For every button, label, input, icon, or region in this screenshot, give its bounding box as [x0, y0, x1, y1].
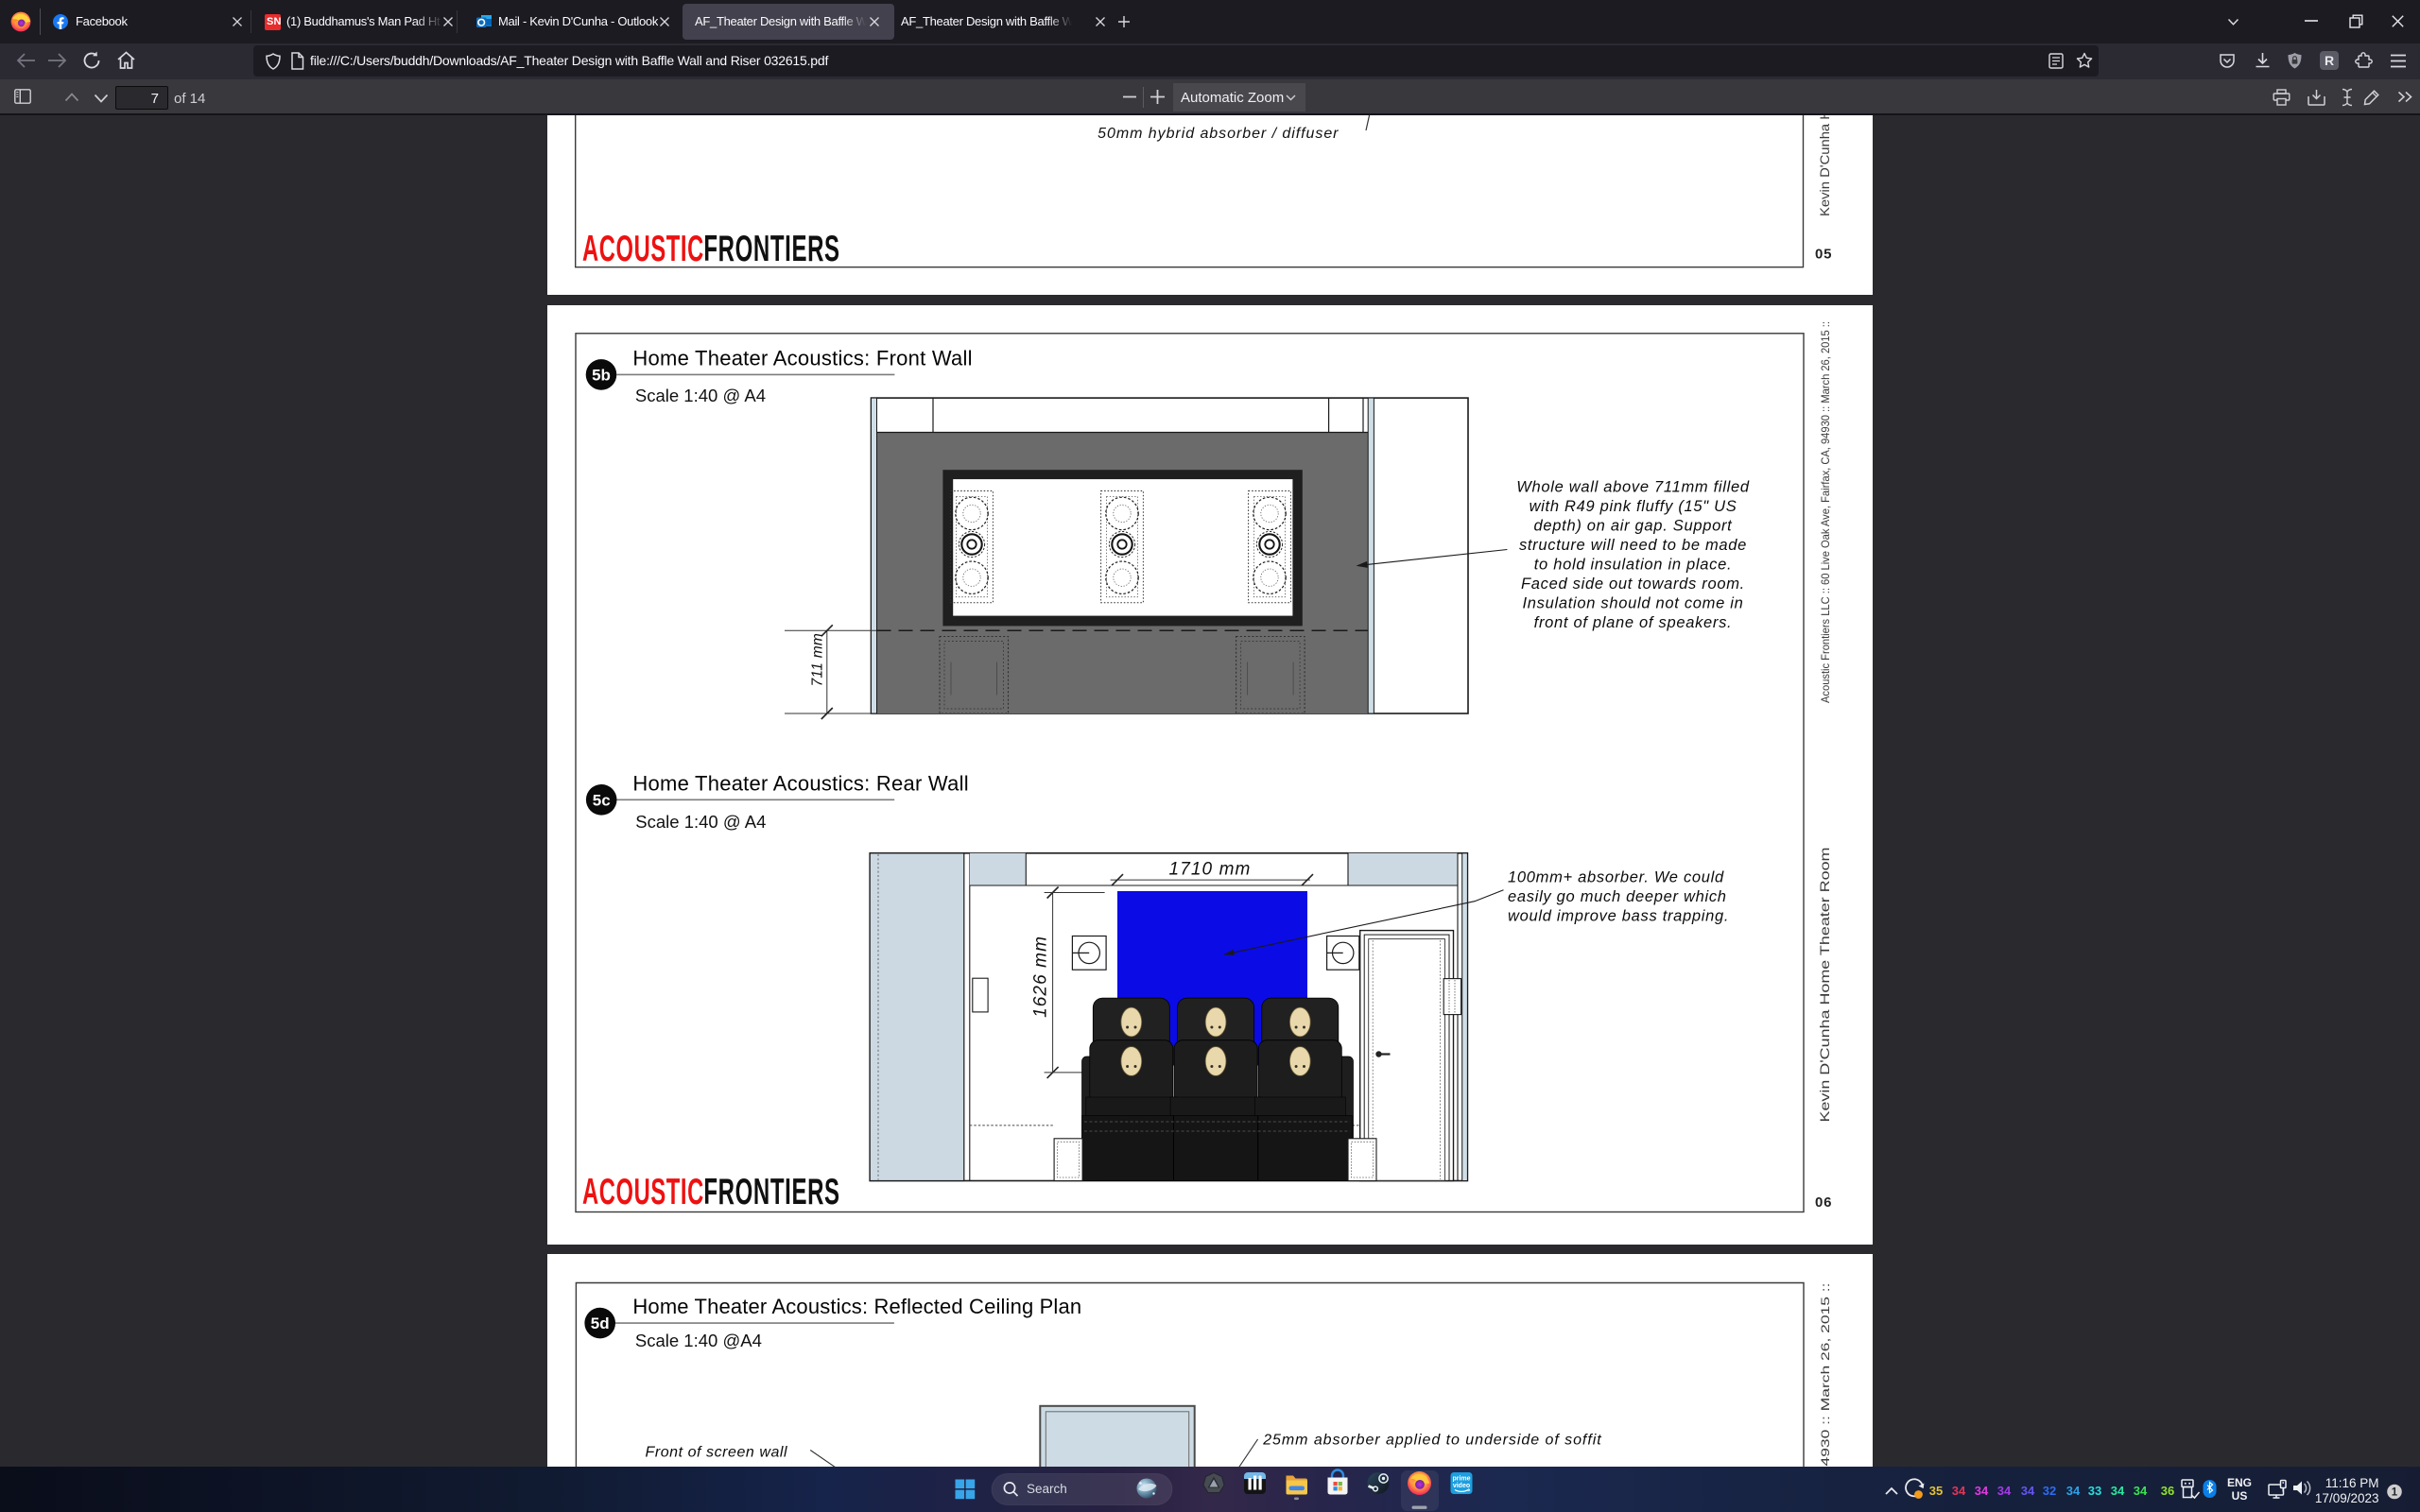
svg-text:36: 36	[2161, 1484, 2174, 1498]
svg-text:Scale 1:40 @ A4: Scale 1:40 @ A4	[635, 811, 766, 831]
svg-text:50mm hybrid absorber / diffuse: 50mm hybrid absorber / diffuser	[1098, 126, 1339, 142]
svg-text:5d: 5d	[591, 1314, 610, 1332]
svg-text:25mm absorber applied to under: 25mm absorber applied to underside of so…	[1262, 1432, 1601, 1448]
svg-text:1: 1	[2392, 1487, 2398, 1499]
svg-text:Scale 1:40 @ A4: Scale 1:40 @ A4	[635, 385, 766, 404]
svg-text:to hold insulation in place.: to hold insulation in place.	[1534, 556, 1732, 573]
svg-text:front of plane of speakers.: front of plane of speakers.	[1534, 613, 1733, 630]
svg-text:35: 35	[1929, 1484, 1943, 1498]
svg-text:Home Theater Acoustics: Reflec: Home Theater Acoustics: Reflected Ceilin…	[632, 1295, 1081, 1318]
svg-text:Scale 1:40 @A4: Scale 1:40 @A4	[635, 1330, 762, 1349]
svg-text:easily go much deeper which: easily go much deeper which	[1508, 888, 1727, 905]
svg-text:Acoustic Frontiers LLC :: 60: Acoustic Frontiers LLC :: 60 Live Oak Av…	[1819, 321, 1832, 703]
svg-text:Whole wall above 711mm filled: Whole wall above 711mm filled	[1516, 478, 1750, 495]
svg-text:prime: prime	[1452, 1476, 1470, 1483]
svg-text:Insulation should not come in: Insulation should not come in	[1522, 594, 1743, 611]
svg-text:ACOUSTIC: ACOUSTIC	[582, 1170, 704, 1211]
svg-text:would improve bass trapping.: would improve bass trapping.	[1508, 907, 1729, 924]
svg-text:100mm+ absorber. We could: 100mm+ absorber. We could	[1508, 868, 1724, 885]
svg-text:34: 34	[2066, 1484, 2081, 1498]
svg-text:11:16 PM: 11:16 PM	[2325, 1476, 2379, 1490]
svg-text:05: 05	[1815, 247, 1832, 263]
svg-text:FRONTIERS: FRONTIERS	[703, 228, 839, 268]
svg-text:34: 34	[1952, 1484, 1966, 1498]
svg-text:1626 mm: 1626 mm	[1031, 935, 1051, 1017]
svg-text:32: 32	[2043, 1484, 2056, 1498]
svg-text:structure will need to be made: structure will need to be made	[1519, 536, 1747, 553]
svg-text:5b: 5b	[592, 366, 611, 384]
svg-text:US: US	[2232, 1489, 2248, 1503]
svg-text:Home Theater Acoustics: Rear W: Home Theater Acoustics: Rear Wall	[632, 771, 969, 795]
svg-text:5c: 5c	[593, 791, 611, 809]
svg-text:34: 34	[1997, 1484, 2012, 1498]
svg-text:34: 34	[2111, 1484, 2125, 1498]
svg-text:1710 mm: 1710 mm	[1169, 859, 1252, 879]
svg-text:video: video	[1453, 1483, 1470, 1489]
svg-text:depth) on air gap. Support: depth) on air gap. Support	[1534, 517, 1734, 534]
svg-text:Front of screen wall: Front of screen wall	[646, 1444, 788, 1460]
svg-text:06: 06	[1815, 1194, 1832, 1211]
svg-text:FRONTIERS: FRONTIERS	[703, 1171, 839, 1211]
svg-text:34: 34	[2021, 1484, 2035, 1498]
svg-text:34: 34	[1975, 1484, 1989, 1498]
svg-text:33: 33	[2088, 1484, 2101, 1498]
svg-text:34: 34	[2134, 1484, 2148, 1498]
svg-text:4930 :: March 26, 2015 ::: 4930 :: March 26, 2015 ::	[1821, 1282, 1832, 1466]
svg-text:Faced side out towards room.: Faced side out towards room.	[1521, 575, 1745, 592]
svg-text:ENG: ENG	[2227, 1476, 2252, 1489]
svg-text:711 mm: 711 mm	[810, 632, 826, 686]
svg-text:Home Theater Acoustics: Front: Home Theater Acoustics: Front Wall	[632, 346, 972, 369]
svg-text:Kevin D'Cunha Home Theater Roo: Kevin D'Cunha Home Theater Room	[1817, 847, 1832, 1122]
svg-text:Search: Search	[1027, 1482, 1067, 1496]
svg-text:Kevin D'Cunha Home Theater Roo: Kevin D'Cunha Home Theater Room	[1817, 115, 1832, 216]
svg-text:17/09/2023: 17/09/2023	[2315, 1491, 2379, 1505]
svg-text:ACOUSTIC: ACOUSTIC	[582, 228, 704, 268]
svg-text:with R49 pink fluffy (15" US: with R49 pink fluffy (15" US	[1530, 497, 1737, 514]
